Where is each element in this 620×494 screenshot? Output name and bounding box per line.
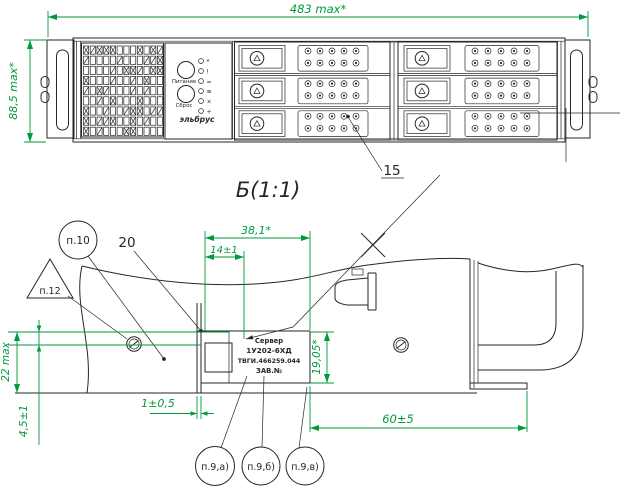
vent-hole-center <box>319 95 321 97</box>
vent-hole-center <box>513 115 515 117</box>
led-indicator <box>199 109 204 114</box>
vent-hole-center <box>500 83 502 85</box>
grille-cell <box>90 97 95 105</box>
vent-hole-center <box>526 50 528 52</box>
grille-hatch <box>104 107 109 115</box>
side-outline <box>15 258 583 393</box>
grille-cell <box>124 87 129 95</box>
vent-hole-center <box>343 50 345 52</box>
detail-title: Б(1:1) <box>236 178 301 202</box>
vent-hole-center <box>487 62 489 64</box>
grille-cell <box>104 76 109 84</box>
grille-hatch <box>104 117 109 125</box>
drawing-sheet: Питание Сброс *!=≡×+ эльбрус 15 483 max* <box>0 0 620 494</box>
grille-hatch <box>110 76 115 84</box>
nameplate: Сервер 1У202-6ХД ТВГИ.466259.044 ЗАВ.№ <box>238 337 301 375</box>
vent-hole-center <box>319 50 321 52</box>
vent-hole-center <box>500 50 502 52</box>
right-rack-ear <box>565 40 597 138</box>
tray-latch-plate <box>404 46 450 72</box>
callout-p10: п.10 <box>59 221 166 361</box>
tray-vent-panel <box>298 46 368 72</box>
grille-cell <box>117 66 122 74</box>
grille-cell <box>104 97 109 105</box>
tray-vent-panel <box>298 78 368 104</box>
tray-latch-inner <box>407 114 447 134</box>
vent-hole-center <box>487 95 489 97</box>
grille-cell <box>131 97 136 105</box>
led-indicator <box>199 79 204 84</box>
handle-top-edge <box>478 263 583 272</box>
eject-triangle-icon <box>419 55 425 60</box>
vent-hole-center <box>474 95 476 97</box>
dim-19-05: 19,05* <box>310 332 334 383</box>
grille-hatch <box>117 56 122 64</box>
dim-width-483: 483 max* <box>48 2 588 37</box>
grille-cell <box>110 127 115 135</box>
vent-hole-center <box>343 115 345 117</box>
dim-14-text: 14±1 <box>210 245 237 256</box>
grille-cell <box>97 66 102 74</box>
eject-triangle-icon <box>419 121 425 126</box>
vent-hole-center <box>319 127 321 129</box>
grille-hatch <box>97 97 102 105</box>
grille-hatch <box>151 107 156 115</box>
grille-cell <box>117 117 122 125</box>
tray-latch-plate <box>239 78 285 104</box>
vent-hole-center <box>526 62 528 64</box>
nameplate-line1: Сервер <box>255 337 283 345</box>
vent-hole-center <box>343 62 345 64</box>
vent-hole-center <box>331 83 333 85</box>
grille-cell <box>104 56 109 64</box>
vent-hole-center <box>331 115 333 117</box>
grille-cell <box>124 56 129 64</box>
vent-hole-center <box>474 115 476 117</box>
vent-hole-center <box>331 127 333 129</box>
vent-hole-center <box>500 127 502 129</box>
grille-cell <box>90 127 95 135</box>
dim-1: 1±0,5 <box>141 396 214 419</box>
dim-38-1-text: 38,1* <box>241 224 271 237</box>
vent-hole-center <box>526 127 528 129</box>
dim-height-text: 88,5 max* <box>7 62 20 120</box>
led-indicator <box>199 89 204 94</box>
led-indicator <box>199 59 204 64</box>
vent-hole-center <box>355 95 357 97</box>
vent-hole-center <box>474 50 476 52</box>
dim-19-05-text: 19,05* <box>311 339 323 374</box>
callout-p9b-label: п.9,б) <box>247 462 275 473</box>
tray-latch-inner <box>407 49 447 69</box>
tray-latch-plate <box>239 111 285 137</box>
grille-cell <box>97 76 102 84</box>
grille-cell <box>90 66 95 74</box>
left-rack-ear <box>41 40 74 138</box>
vent-hole-center <box>487 50 489 52</box>
vent-hole-center <box>307 127 309 129</box>
power-button <box>178 62 195 79</box>
callout-p9b: п.9,б) <box>242 376 280 485</box>
grille-cell <box>151 76 156 84</box>
vent-hole-center <box>500 62 502 64</box>
latch-button <box>250 52 264 66</box>
grille-cell <box>144 127 149 135</box>
grille-cell <box>157 97 162 105</box>
vent-hole-center <box>319 83 321 85</box>
grille-cell <box>157 87 162 95</box>
vent-hole-center <box>513 83 515 85</box>
dim-14: 14±1 <box>205 245 244 339</box>
grille-cell <box>124 76 129 84</box>
tray-latch-plate <box>404 111 450 137</box>
dim-width-text: 483 max* <box>290 2 347 16</box>
vent-hole-center <box>513 50 515 52</box>
vent-hole-center <box>487 115 489 117</box>
grille-hatch <box>104 87 109 95</box>
eject-triangle-icon <box>254 121 260 126</box>
tray-latch-inner <box>242 81 282 101</box>
tray-latch-inner <box>407 81 447 101</box>
grille-cell <box>124 46 129 54</box>
engineering-drawing: Питание Сброс *!=≡×+ эльбрус 15 483 max* <box>0 0 620 494</box>
screw-right <box>394 338 409 353</box>
led-icon: ≡ <box>207 88 212 95</box>
grille-cell <box>90 76 95 84</box>
vent-hole-center <box>319 115 321 117</box>
grille-cell <box>117 97 122 105</box>
grille-cell <box>97 107 102 115</box>
grille-cell <box>144 107 149 115</box>
vent-hole-center <box>526 115 528 117</box>
grille-cell <box>90 107 95 115</box>
latch-button <box>415 117 429 131</box>
dim-22-text: 22 max <box>0 341 12 381</box>
callout-15: 15 <box>346 115 404 179</box>
latch-button <box>415 84 429 98</box>
bay-group <box>398 42 557 140</box>
tray-vent-panel <box>465 46 539 72</box>
grille-hatch <box>151 56 156 64</box>
grille-hatch <box>137 66 142 74</box>
led-icon: ! <box>207 68 209 75</box>
vent-hole-center <box>526 95 528 97</box>
tray-latch-plate <box>239 46 285 72</box>
grille-hatch <box>157 46 162 54</box>
grille-cell <box>137 127 142 135</box>
eject-triangle-icon <box>419 88 425 93</box>
drive-bays <box>235 42 558 140</box>
vent-hole-center <box>355 115 357 117</box>
grille-cell <box>144 97 149 105</box>
grille-cell <box>104 66 109 74</box>
tray-vent-panel <box>465 78 539 104</box>
grille-cell <box>144 46 149 54</box>
grille-cell <box>151 97 156 105</box>
control-panel: Питание Сброс *!=≡×+ эльбрус <box>165 43 232 139</box>
callout-p9a-label: п.9,а) <box>201 462 229 473</box>
grille-hatch <box>131 87 136 95</box>
grille-cell <box>137 87 142 95</box>
grille-hatch <box>97 117 102 125</box>
led-indicator <box>199 99 204 104</box>
callout-p10-label: п.10 <box>66 235 90 247</box>
led-indicators: *!=≡×+ <box>199 58 212 115</box>
vent-hole-center <box>513 62 515 64</box>
nameplate-line3: ТВГИ.466259.044 <box>238 358 301 365</box>
tray-latch-inner <box>242 49 282 69</box>
grille-cell <box>137 76 142 84</box>
grille-hatch <box>84 87 89 95</box>
vent-hole-center <box>355 83 357 85</box>
grille-cell <box>137 117 142 125</box>
callout-p12-label: п.12 <box>39 286 60 297</box>
dim-38-1: 38,1* <box>205 224 310 331</box>
vent-hole-center <box>307 83 309 85</box>
reset-button-label: Сброс <box>176 103 193 109</box>
handle-outer <box>478 265 583 370</box>
grille-cell <box>124 117 129 125</box>
grille-hatch <box>144 56 149 64</box>
grille-cell <box>110 56 115 64</box>
grille-cell <box>84 97 89 105</box>
grille-cell <box>110 87 115 95</box>
latch-button <box>415 52 429 66</box>
grille-cell <box>117 46 122 54</box>
dim-60-text: 60±5 <box>382 412 414 426</box>
grille-cell <box>131 56 136 64</box>
led-indicator <box>199 69 204 74</box>
grille-hatch <box>90 46 95 54</box>
grille-hatch <box>144 117 149 125</box>
grille-hatch <box>110 66 115 74</box>
nameplate-line4: ЗАВ.№ <box>256 367 282 375</box>
led-icon: * <box>207 58 210 65</box>
dim-height-885: 88,5 max* <box>7 40 46 142</box>
callout-p12: п.12 <box>27 259 127 339</box>
nameplate-line2: 1У202-6ХД <box>246 346 291 355</box>
grille-hatch <box>144 87 149 95</box>
callout-20: 20 <box>118 235 202 333</box>
grille-hatch <box>157 107 162 115</box>
vent-hole-center <box>307 50 309 52</box>
vent-hole-center <box>513 95 515 97</box>
grille-cell <box>157 127 162 135</box>
vent-hole-center <box>487 127 489 129</box>
grille-cell <box>84 66 89 74</box>
callout-p9c-label: п.9,в) <box>291 462 319 473</box>
latch-button <box>250 117 264 131</box>
tray-vent-panel <box>465 111 539 137</box>
vent-hole-center <box>319 62 321 64</box>
vent-hole-center <box>331 62 333 64</box>
grille-cell <box>90 117 95 125</box>
grille-cell <box>151 127 156 135</box>
vent-hole-center <box>526 83 528 85</box>
callout-p9a: п.9,а) <box>196 376 248 486</box>
grille-cell <box>151 117 156 125</box>
vent-hole-center <box>343 83 345 85</box>
vent-hole-center <box>513 127 515 129</box>
grille-cell <box>157 76 162 84</box>
vent-hole-center <box>474 62 476 64</box>
screw-left <box>127 337 142 352</box>
grille-cell <box>137 56 142 64</box>
dim-22: 22 max <box>0 332 229 393</box>
vent-grille <box>82 43 164 137</box>
tray-latch-plate <box>404 78 450 104</box>
vent-hole-center <box>331 50 333 52</box>
grille-cell <box>90 87 95 95</box>
grille-cell <box>144 66 149 74</box>
vent-hole-center <box>500 95 502 97</box>
eject-triangle-icon <box>254 88 260 93</box>
grille-hatch <box>84 56 89 64</box>
vent-hole-center <box>474 127 476 129</box>
vent-hole-center <box>487 83 489 85</box>
vent-hole-center <box>343 95 345 97</box>
vent-hole-center <box>355 62 357 64</box>
led-icon: = <box>207 78 212 85</box>
eject-triangle-icon <box>254 55 260 60</box>
power-button-label: Питание <box>172 79 197 85</box>
callout-20-label: 20 <box>118 235 135 251</box>
vent-hole-center <box>307 95 309 97</box>
reset-button <box>178 86 195 103</box>
latch-button <box>250 84 264 98</box>
tray-latch-inner <box>242 114 282 134</box>
grille-cell <box>117 107 122 115</box>
grille-cell <box>151 87 156 95</box>
grille-cell <box>157 117 162 125</box>
grille-cell <box>90 56 95 64</box>
dim-4-5-text: 4,5±1 <box>18 405 30 437</box>
grille-cell <box>131 46 136 54</box>
grille-cell <box>124 97 129 105</box>
grille-cell <box>117 127 122 135</box>
vent-hole-center <box>331 95 333 97</box>
latch-clip <box>335 269 376 310</box>
grille-hatch <box>131 76 136 84</box>
brand-label: эльбрус <box>179 115 215 124</box>
grille-cell <box>117 87 122 95</box>
vent-hole-center <box>500 115 502 117</box>
vent-hole-center <box>307 115 309 117</box>
grille-cell <box>104 127 109 135</box>
callout-15-label: 15 <box>383 163 400 179</box>
vent-hole-center <box>355 50 357 52</box>
front-view: Питание Сброс *!=≡×+ эльбрус 15 483 max* <box>7 2 620 179</box>
handle-inner <box>478 271 556 345</box>
vent-hole-center <box>343 127 345 129</box>
grille-cell <box>117 76 122 84</box>
grille-cell <box>97 56 102 64</box>
grille-cell <box>110 107 115 115</box>
led-icon: × <box>207 98 212 105</box>
detail-view: Б(1:1) <box>0 175 583 486</box>
dim-1-text: 1±0,5 <box>141 397 175 410</box>
dim-4-5: 4,5±1 <box>8 320 201 445</box>
grille-hatch <box>97 127 102 135</box>
vent-hole-center <box>307 62 309 64</box>
callout-p9c: п.9,в) <box>286 387 324 485</box>
vent-hole-center <box>474 83 476 85</box>
grille-hatch <box>124 107 129 115</box>
side-window <box>205 343 232 372</box>
